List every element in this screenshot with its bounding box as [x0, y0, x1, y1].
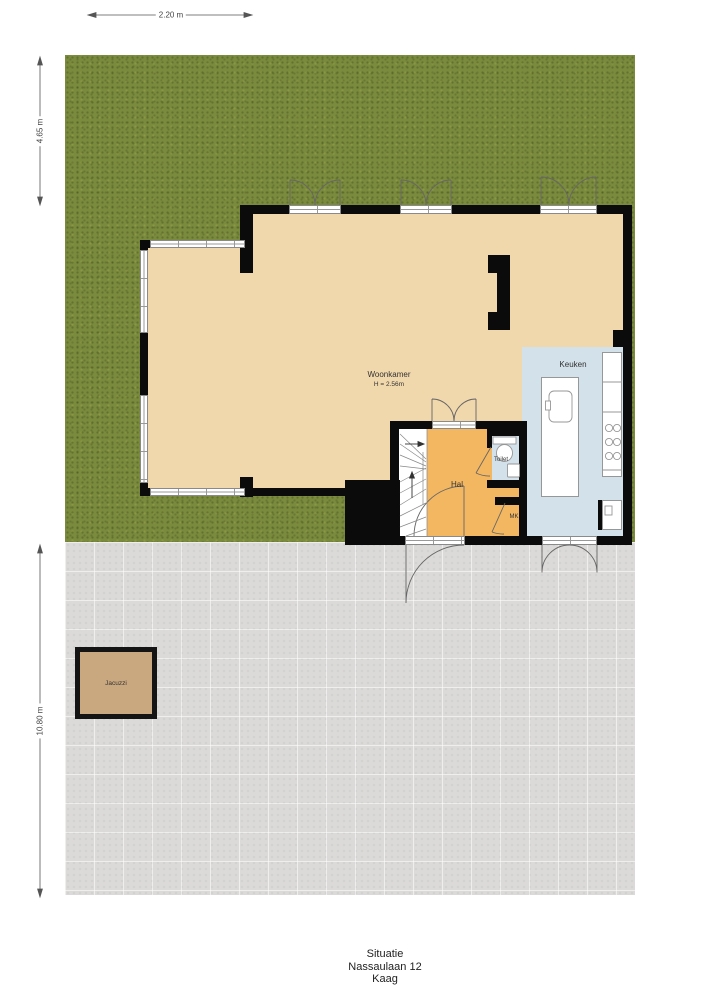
title-line-1: Situatie — [285, 948, 485, 961]
floor-plan-page: Jacuzzi — [0, 0, 707, 1000]
mk-label: MK — [504, 514, 524, 520]
door-threshold-hall-living — [432, 421, 476, 429]
door-threshold-garden-3 — [540, 205, 597, 214]
window-bay-top — [150, 240, 245, 248]
wall-right — [623, 205, 632, 545]
title-line-2: Nassaulaan 12 — [285, 961, 485, 974]
dimension-left-upper-label: 4.65 m — [36, 116, 45, 146]
jacuzzi: Jacuzzi — [75, 647, 157, 719]
wall-toilet-left-stub — [487, 436, 492, 448]
fireplace-nub-bottom — [488, 312, 497, 330]
woonkamer-floor-upper — [240, 214, 623, 347]
window-bay-left-lower — [140, 395, 148, 483]
wall-mk-top — [495, 497, 527, 505]
kitchen-island — [541, 377, 579, 497]
fireplace-nub-top — [488, 255, 497, 273]
door-threshold-kitchen — [542, 536, 597, 545]
window-bay-bottom — [150, 488, 245, 496]
wall-kitchen-stub — [613, 330, 623, 347]
title-block: Situatie Nassaulaan 12 Kaag — [285, 948, 485, 986]
staircase-area — [399, 429, 427, 536]
door-threshold-garden-1 — [289, 205, 341, 214]
woonkamer-floor-lower — [240, 421, 390, 488]
kitchen-counter — [602, 352, 622, 477]
title-line-3: Kaag — [285, 973, 485, 986]
woonkamer-label: Woonkamer — [329, 370, 449, 379]
wall-toilet-bottom — [487, 480, 527, 488]
dimension-top-label: 2.20 m — [156, 11, 186, 20]
door-threshold-garden-2 — [400, 205, 452, 214]
toilet-label: Toilet — [481, 457, 521, 463]
keuken-label: Keuken — [533, 360, 613, 369]
dimension-left-lower-label: 10.80 m — [36, 704, 45, 739]
window-bay-left-upper — [140, 250, 148, 333]
wall-toilet-top — [487, 428, 527, 436]
wall-top-left-connector — [240, 205, 253, 273]
jacuzzi-label: Jacuzzi — [105, 680, 127, 687]
woonkamer-bay-floor — [148, 248, 248, 488]
wall-bottom-left-pier — [345, 480, 400, 545]
fireplace-column — [497, 255, 510, 330]
door-threshold-front — [405, 536, 465, 545]
woonkamer-height-note: H = 2.56m — [329, 381, 449, 388]
wall-living-bottom — [240, 488, 352, 496]
wall-stairs-left — [390, 421, 399, 480]
kitchen-appliance — [602, 500, 622, 530]
hal-label: Hal — [437, 480, 477, 489]
